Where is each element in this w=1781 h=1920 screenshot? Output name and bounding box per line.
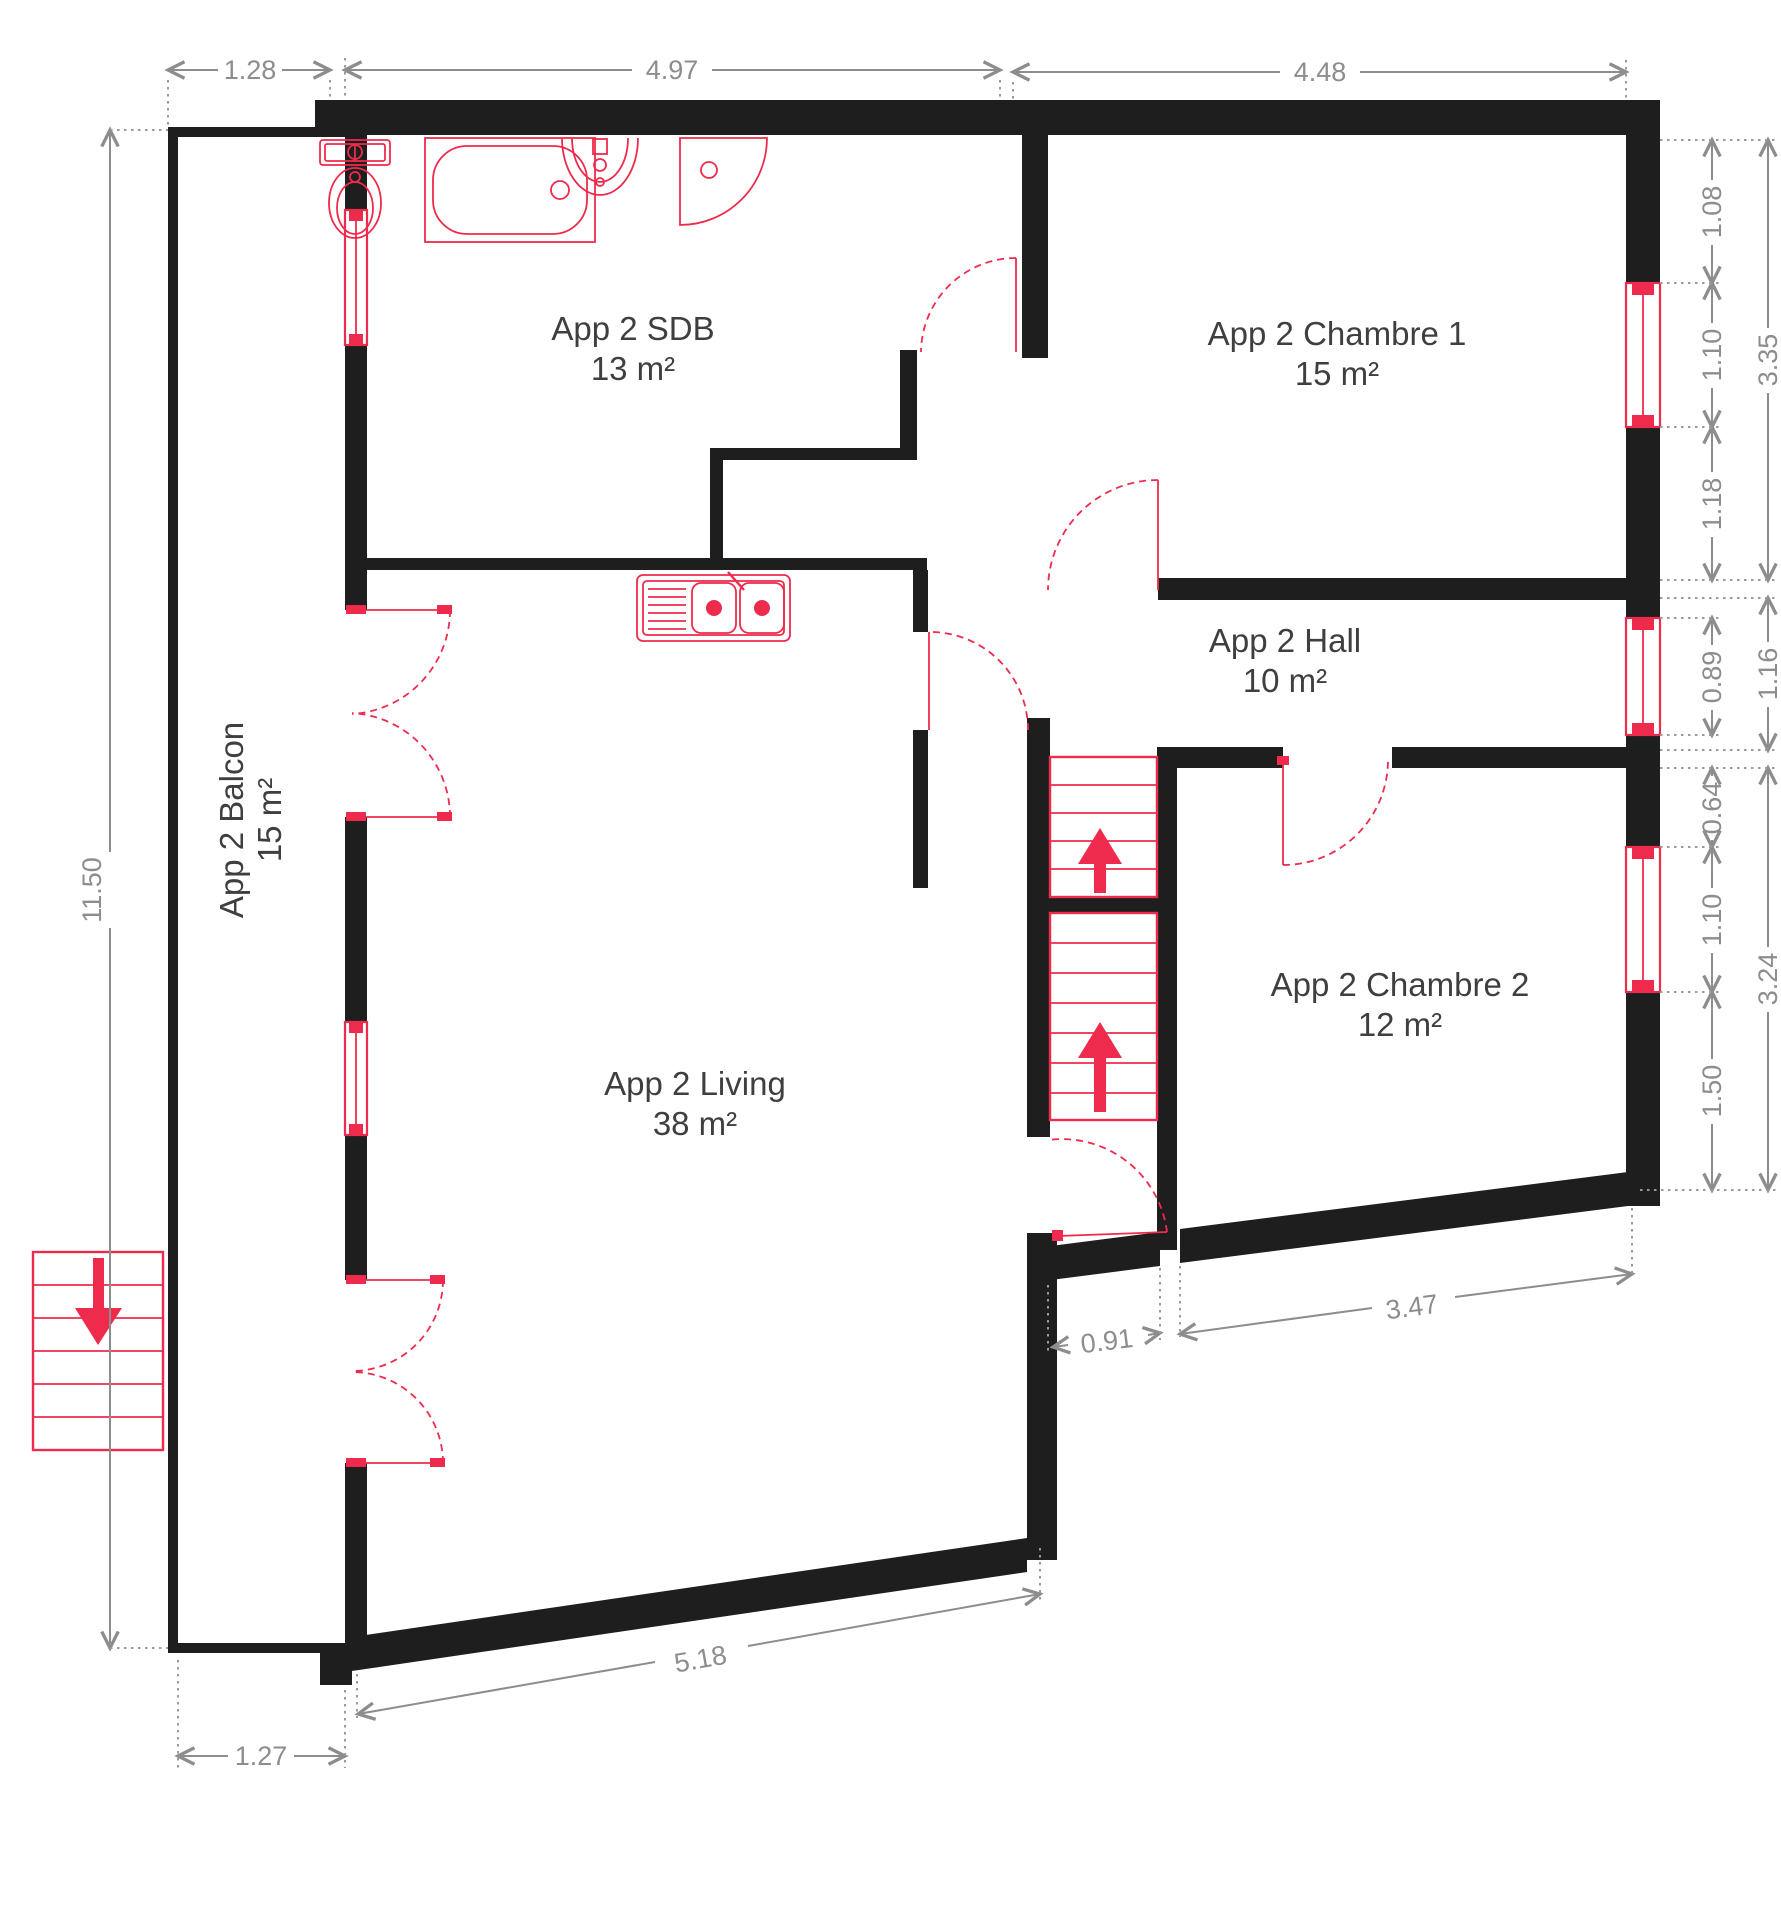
floor-plan-drawing: App 2 SDB 13 m² App 2 Chambre 1 15 m² Ap… [0,0,1781,1920]
french-door-living-lower-icon [346,1275,445,1467]
svg-text:11.50: 11.50 [77,857,107,923]
svg-text:1.16: 1.16 [1753,648,1781,701]
wall-chambre2-north-a [1157,747,1283,768]
svg-text:1.50: 1.50 [1697,1065,1727,1118]
svg-text:3.47: 3.47 [1384,1289,1440,1326]
window-hall-icon [1626,618,1660,735]
label-chambre2-area: 12 m² [1358,1006,1442,1043]
doors [346,258,1388,1467]
stairs-exterior-down [33,1252,163,1450]
svg-text:1.08: 1.08 [1697,186,1727,239]
balcony-wall-south [168,1643,345,1653]
wall-sdb-south-b [710,448,723,570]
wall-west-seg4 [345,1135,367,1280]
french-door-living-upper-icon [346,605,452,821]
dim-chambre1-wall-upper: 1.08 [1697,140,1727,283]
wall-living-hall-a [913,570,928,632]
door-entry-icon [1048,1139,1167,1241]
stairs-flight-upper [1050,757,1157,897]
door-hall-living-icon [929,632,1028,730]
svg-text:3.24: 3.24 [1753,953,1781,1006]
wall-stairwell-west-a [1027,718,1050,1137]
wall-stairwell-east [1157,750,1177,1250]
wall-stairwell-west-b [1027,1233,1057,1560]
window-living-icon [345,1022,367,1135]
dim-left-height-total: 11.50 [77,130,168,1648]
dim-balcony-width-bottom: 1.27 [178,1660,345,1771]
door-chambre1-icon [1048,480,1158,590]
svg-text:0.89: 0.89 [1697,651,1727,704]
bathtub-icon [425,138,595,242]
stairs-up-arrow-icon [1078,1022,1122,1112]
dim-chambre2-window: 1.10 [1697,847,1727,992]
window-chambre2-icon [1626,847,1660,992]
label-hall: App 2 Hall [1209,622,1361,659]
label-chambre1: App 2 Chambre 1 [1208,315,1467,352]
wall-sdb-chambre1 [1022,135,1048,358]
dim-balcony-width-top: 1.28 [168,55,330,127]
balcony-wall-north [168,127,345,137]
stairs-up-arrow-icon [1078,828,1122,893]
wall-sdb-east [900,350,917,460]
label-sdb-area: 13 m² [591,350,675,387]
label-balcon: App 2 Balcon [213,722,250,918]
dim-chambre1-wall-lower: 1.18 [1697,427,1727,580]
dim-entry-width: 0.91 [1048,1268,1160,1359]
label-balcon-area: 15 m² [251,778,288,862]
label-chambre2: App 2 Chambre 2 [1271,966,1530,1003]
label-chambre1-area: 15 m² [1295,355,1379,392]
wall-chambre2-south [1180,1172,1628,1263]
svg-text:4.48: 4.48 [1294,57,1347,87]
dim-chambre1-width: 4.48 [1013,57,1626,100]
label-hall-area: 10 m² [1243,662,1327,699]
dim-sdb-width: 4.97 [345,55,1000,100]
stairs [33,757,1157,1450]
dim-chambre1-window: 1.10 [1697,283,1727,427]
svg-text:3.35: 3.35 [1753,334,1781,387]
dim-hall-window: 0.89 [1697,618,1727,735]
dim-chambre2-side-total: 3.24 [1753,768,1781,1190]
kitchen-sink-icon [637,572,790,641]
wall-sdb-south-c [360,558,927,570]
wall-living-hall-b [913,730,928,888]
dimension-annotations: 1.28 4.97 4.48 1.08 1.10 [77,55,1781,1771]
dim-chambre2-wall-lower: 1.50 [1697,992,1727,1190]
wall-west-seg3 [345,817,367,1022]
svg-text:0.91: 0.91 [1079,1323,1135,1359]
svg-text:1.10: 1.10 [1697,894,1727,947]
svg-text:5.18: 5.18 [672,1640,729,1679]
stairs-down-arrow-icon [75,1258,122,1345]
svg-text:1.28: 1.28 [224,55,277,85]
wall-west-seg2 [345,345,367,610]
wall-stairs-middle [1050,897,1157,913]
wall-west-seg5 [345,1463,367,1643]
floor-plan-page: App 2 SDB 13 m² App 2 Chambre 1 15 m² Ap… [0,0,1781,1920]
label-living-area: 38 m² [653,1105,737,1142]
balcony-wall-west [168,127,178,1653]
wall-chambre2-north-b [1392,747,1660,768]
wall-sdb-south-a [710,448,917,460]
label-living: App 2 Living [604,1065,786,1102]
door-chambre2-icon [1277,756,1388,865]
label-sdb: App 2 SDB [551,310,714,347]
svg-text:0.64: 0.64 [1697,782,1727,835]
wall-chambre1-south [1158,578,1660,600]
svg-text:1.27: 1.27 [235,1741,288,1771]
stairs-flight-lower [1050,913,1157,1120]
door-sdb-icon [921,258,1016,352]
svg-text:4.97: 4.97 [646,55,699,85]
window-chambre1-icon [1626,283,1660,427]
wall-north [315,100,1660,135]
dim-chambre1-side-total: 3.35 [1753,140,1781,580]
bathroom-sink-icon [562,138,638,195]
room-labels: App 2 SDB 13 m² App 2 Chambre 1 15 m² Ap… [213,310,1529,1142]
dim-hall-side-total: 1.16 [1753,598,1781,750]
svg-text:1.18: 1.18 [1697,478,1727,531]
svg-text:1.10: 1.10 [1697,329,1727,382]
dim-chambre2-wall-upper: 0.64 [1697,768,1727,847]
corner-basin-icon [680,138,767,225]
